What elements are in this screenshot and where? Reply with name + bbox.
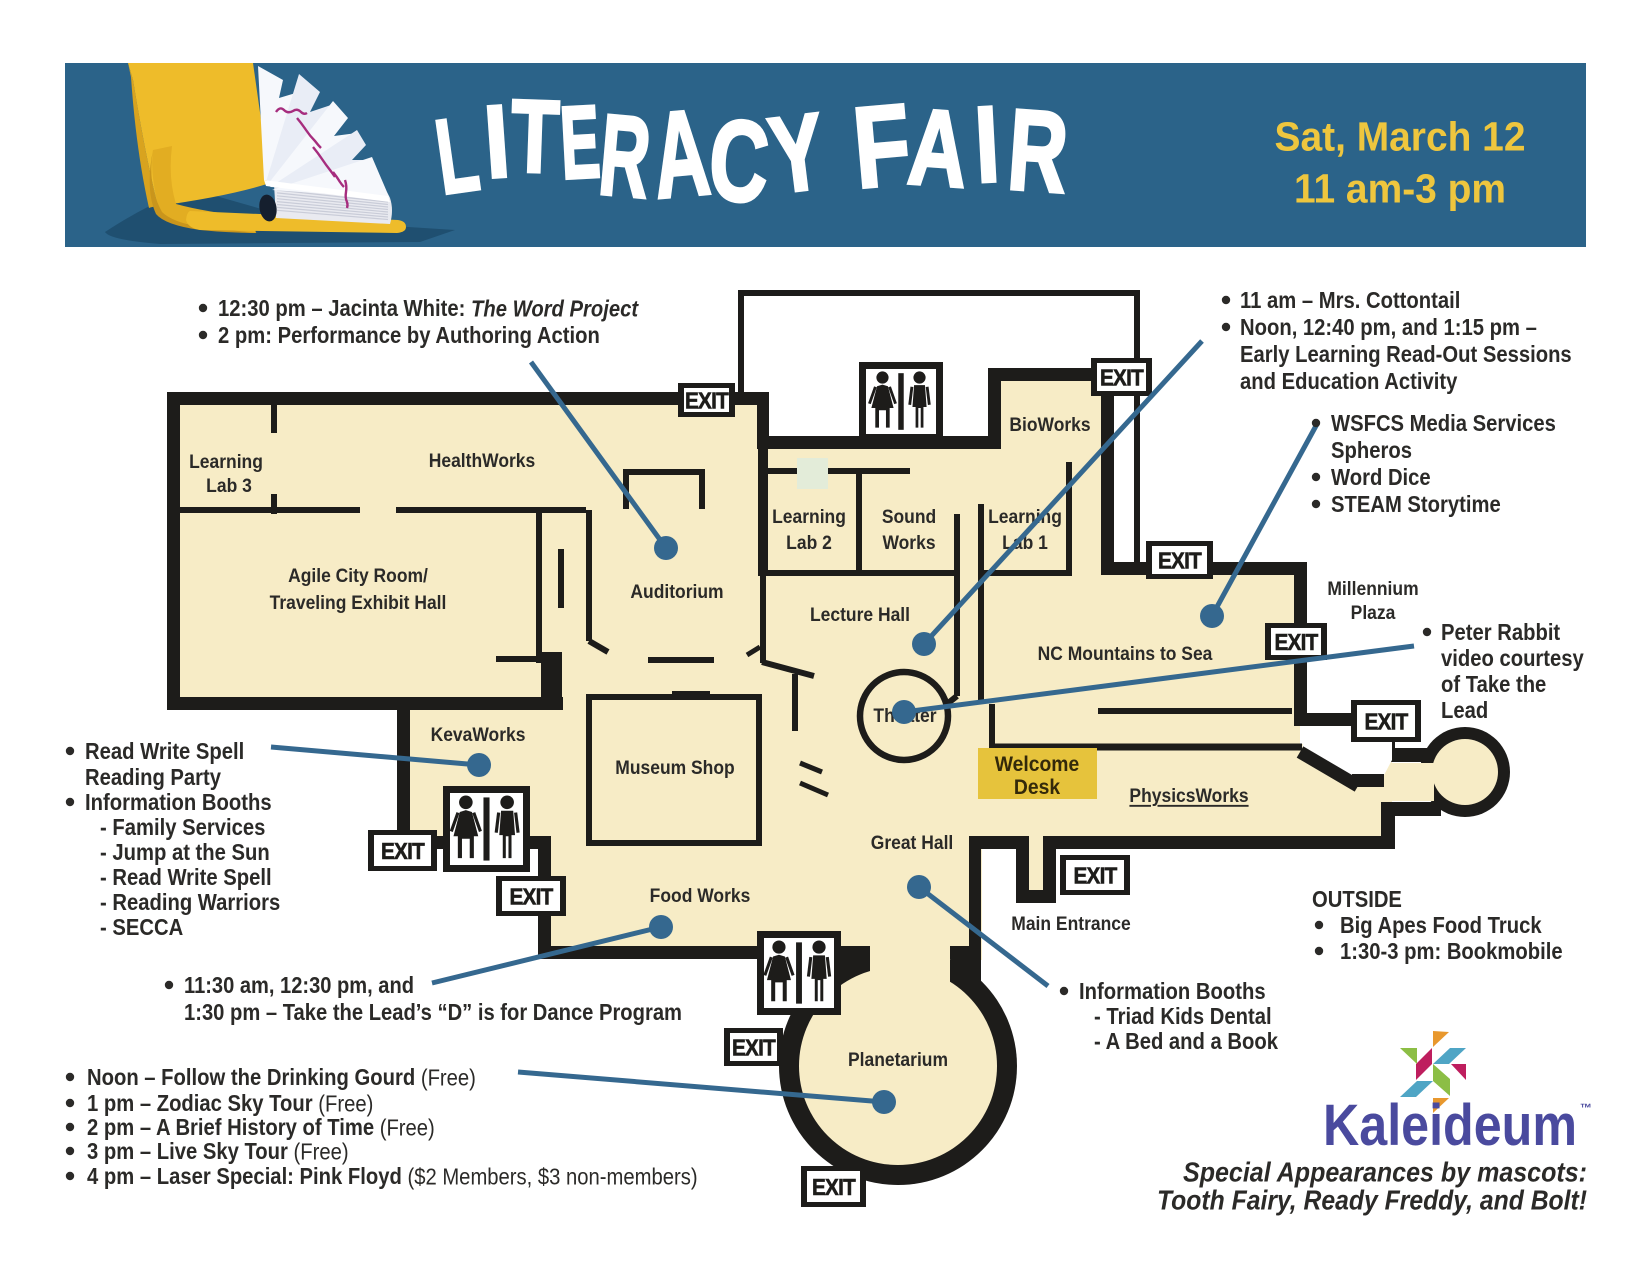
svg-text:Learning: Learning [189,450,263,472]
svg-text:Welcome: Welcome [995,754,1079,777]
svg-text:Noon – Follow the Drinking Gou: Noon – Follow the Drinking Gourd (Free) [87,1064,476,1091]
svg-text:Auditorium: Auditorium [630,580,723,602]
svg-text:EXIT: EXIT [685,387,729,413]
svg-text:EXIT: EXIT [1073,862,1117,888]
svg-text:- Read Write Spell: - Read Write Spell [100,864,272,891]
svg-text:EXIT: EXIT [1274,629,1318,655]
svg-text:11 am-3 pm: 11 am-3 pm [1294,166,1506,211]
svg-text:Great Hall: Great Hall [871,831,954,853]
svg-text:R: R [1004,86,1072,218]
svg-text:Millennium: Millennium [1327,577,1418,599]
svg-text:EXIT: EXIT [509,883,553,909]
svg-text:Main Entrance: Main Entrance [1011,912,1130,934]
svg-text:11 am – Mrs. Cottontail: 11 am – Mrs. Cottontail [1240,287,1460,314]
svg-text:A: A [905,87,972,211]
svg-text:PhysicsWorks: PhysicsWorks [1129,784,1248,806]
svg-text:Special Appearances by mascots: Special Appearances by mascots: [1183,1157,1587,1188]
svg-text:Sound: Sound [882,505,936,527]
svg-text:Word Dice: Word Dice [1331,464,1431,491]
svg-text:- Family Services: - Family Services [100,814,265,841]
svg-text:and Education Activity: and Education Activity [1240,368,1457,395]
svg-text:E: E [557,83,602,200]
svg-text:Learning: Learning [772,505,846,527]
svg-text:Reading Party: Reading Party [85,764,221,791]
svg-text:Sat, March 12: Sat, March 12 [1274,114,1525,159]
svg-text:A: A [647,84,714,225]
svg-text:- Jump at the Sun: - Jump at the Sun [100,839,270,866]
svg-text:HealthWorks: HealthWorks [429,449,536,471]
svg-text:1:30 pm – Take the Lead’s “D”: 1:30 pm – Take the Lead’s “D” is for Dan… [184,999,682,1025]
svg-text:Information Booths: Information Booths [85,789,272,816]
svg-text:3 pm – Live Sky Tour (Free): 3 pm – Live Sky Tour (Free) [87,1138,349,1165]
svg-text:Lead: Lead [1441,697,1488,724]
svg-text:Plaza: Plaza [1351,601,1396,623]
svg-text:T: T [509,79,561,195]
svg-text:1:30-3 pm: Bookmobile: 1:30-3 pm: Bookmobile [1340,938,1563,965]
svg-text:™: ™ [1580,1101,1592,1115]
svg-text:Lecture Hall: Lecture Hall [810,603,910,625]
svg-text:Read Write Spell: Read Write Spell [85,738,244,765]
svg-text:Information Booths: Information Booths [1079,978,1266,1005]
svg-text:KevaWorks: KevaWorks [431,723,526,745]
svg-text:STEAM Storytime: STEAM Storytime [1331,491,1501,518]
svg-text:2 pm: Performance by Authoring: 2 pm: Performance by Authoring Action [218,322,600,349]
svg-text:EXIT: EXIT [381,838,425,864]
svg-text:2 pm – A Brief History of Time: 2 pm – A Brief History of Time (Free) [87,1114,435,1141]
svg-text:Desk: Desk [1014,777,1061,800]
svg-text:Food Works: Food Works [650,884,751,906]
svg-text:- Reading Warriors: - Reading Warriors [100,889,280,916]
svg-text:C: C [705,96,773,228]
svg-text:OUTSIDE: OUTSIDE [1312,886,1402,913]
svg-text:Tooth Fairy, Ready Freddy, and: Tooth Fairy, Ready Freddy, and Bolt! [1157,1185,1587,1216]
svg-text:Spheros: Spheros [1331,437,1412,464]
svg-text:- A Bed and a Book: - A Bed and a Book [1094,1028,1279,1055]
svg-text:EXIT: EXIT [732,1034,776,1060]
svg-text:1 pm – Zodiac Sky Tour (Free): 1 pm – Zodiac Sky Tour (Free) [87,1090,373,1117]
svg-text:Early Learning Read-Out Sessio: Early Learning Read-Out Sessions [1240,341,1572,368]
svg-text:Lab 2: Lab 2 [786,531,832,553]
svg-text:Kaleideum: Kaleideum [1323,1093,1577,1158]
svg-text:EXIT: EXIT [1100,364,1144,390]
svg-text:Peter Rabbit: Peter Rabbit [1441,619,1560,646]
svg-text:Museum Shop: Museum Shop [615,756,734,778]
svg-text:Lab 3: Lab 3 [206,474,252,496]
svg-text:4 pm – Laser Special: Pink Flo: 4 pm – Laser Special: Pink Floyd ($2 Mem… [87,1163,698,1190]
svg-text:WSFCS Media Services: WSFCS Media Services [1331,410,1556,437]
svg-text:11:30 am, 12:30 pm, and: 11:30 am, 12:30 pm, and [184,972,414,998]
svg-text:- Triad Kids Dental: - Triad Kids Dental [1094,1003,1272,1030]
svg-text:Planetarium: Planetarium [848,1048,948,1070]
svg-text:EXIT: EXIT [1158,547,1202,573]
svg-text:12:30 pm – Jacinta White: The: 12:30 pm – Jacinta White: The Word Proje… [218,295,639,322]
svg-text:EXIT: EXIT [1364,708,1408,734]
svg-text:BioWorks: BioWorks [1009,413,1090,435]
svg-text:of Take the: of Take the [1441,671,1546,698]
svg-text:Agile City Room/: Agile City Room/ [288,564,428,586]
svg-text:NC Mountains to Sea: NC Mountains to Sea [1038,642,1214,664]
svg-text:- SECCA: - SECCA [100,914,184,941]
svg-text:EXIT: EXIT [812,1174,856,1200]
svg-text:Traveling Exhibit Hall: Traveling Exhibit Hall [270,591,447,613]
svg-text:Big Apes Food Truck: Big Apes Food Truck [1340,912,1542,939]
svg-text:video courtesy: video courtesy [1441,645,1584,672]
svg-text:Works: Works [882,531,935,553]
svg-text:Noon, 12:40 pm, and 1:15 pm –: Noon, 12:40 pm, and 1:15 pm – [1240,314,1537,341]
